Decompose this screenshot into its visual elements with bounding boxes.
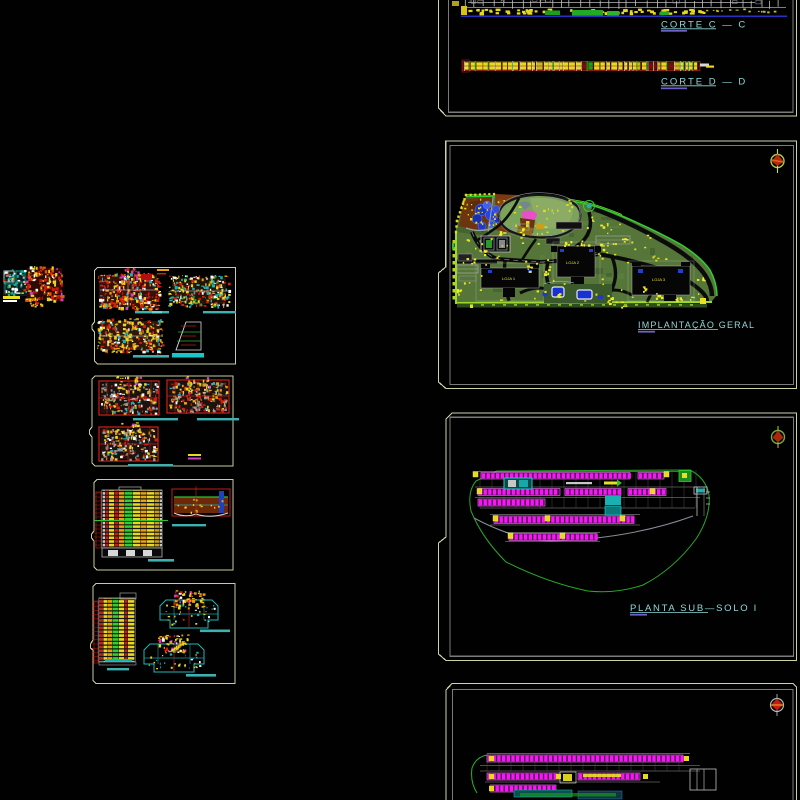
svg-text:LOJA 2: LOJA 2 [566,260,580,265]
svg-text:LOJA 3: LOJA 3 [652,277,666,282]
svg-text:IMPLANTAÇÃO GERAL: IMPLANTAÇÃO GERAL [638,320,755,330]
svg-text:LOJA 1: LOJA 1 [502,276,516,281]
